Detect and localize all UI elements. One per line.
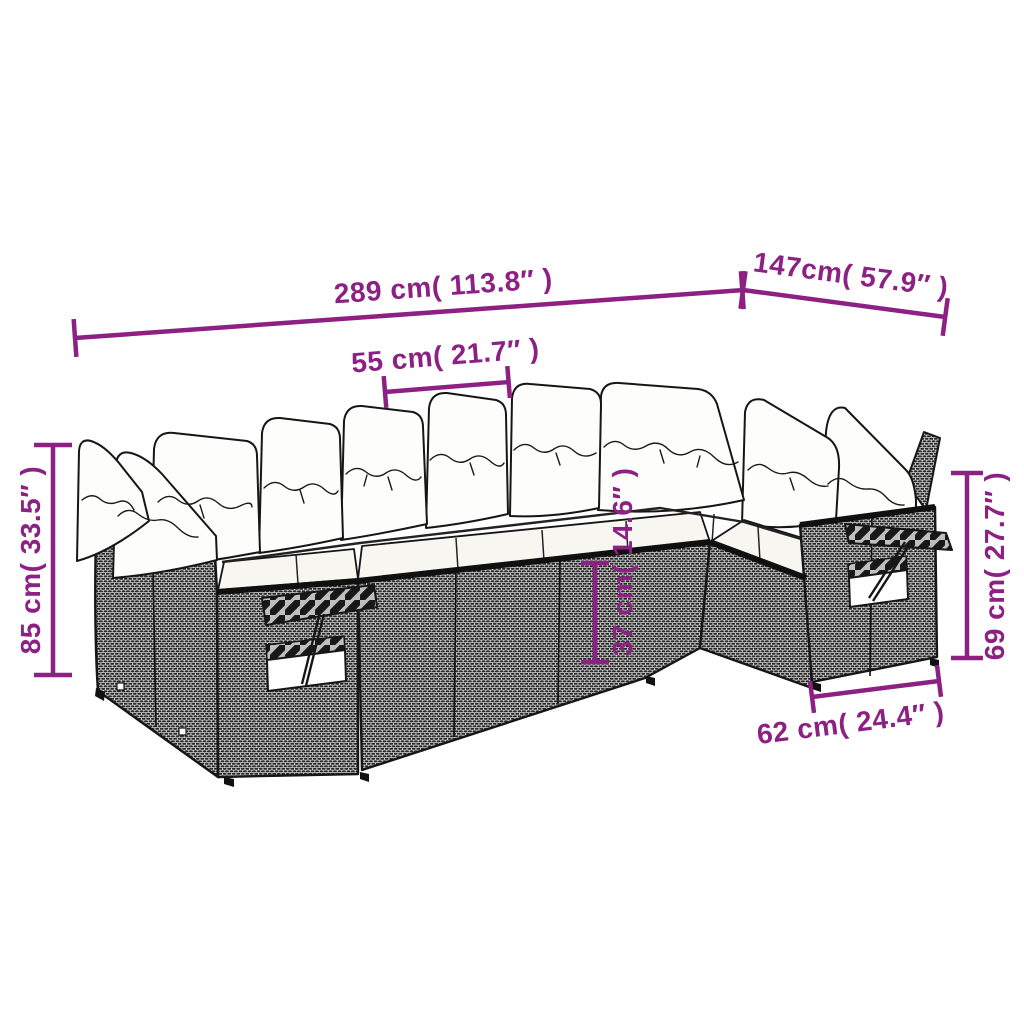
dimension-diagram: 289 cm( 113.8″ ) 147cm( 57.9″ ) 55 cm( 2… — [0, 0, 1024, 1024]
sofa-dimension-drawing: 289 cm( 113.8″ ) 147cm( 57.9″ ) 55 cm( 2… — [0, 0, 1024, 1024]
dimension-label-arm-height: 69 cm( 27.7″ ) — [979, 472, 1010, 661]
dimension-label-seat-height: 37 cm( 14.6″ ) — [607, 467, 638, 656]
dimension-label-total-height: 85 cm( 33.5″ ) — [15, 466, 46, 655]
back-cushion — [510, 384, 601, 517]
back-cushion — [341, 406, 427, 540]
back-cushion — [259, 418, 343, 553]
panel-peg — [117, 683, 124, 690]
panel-peg — [179, 728, 186, 735]
